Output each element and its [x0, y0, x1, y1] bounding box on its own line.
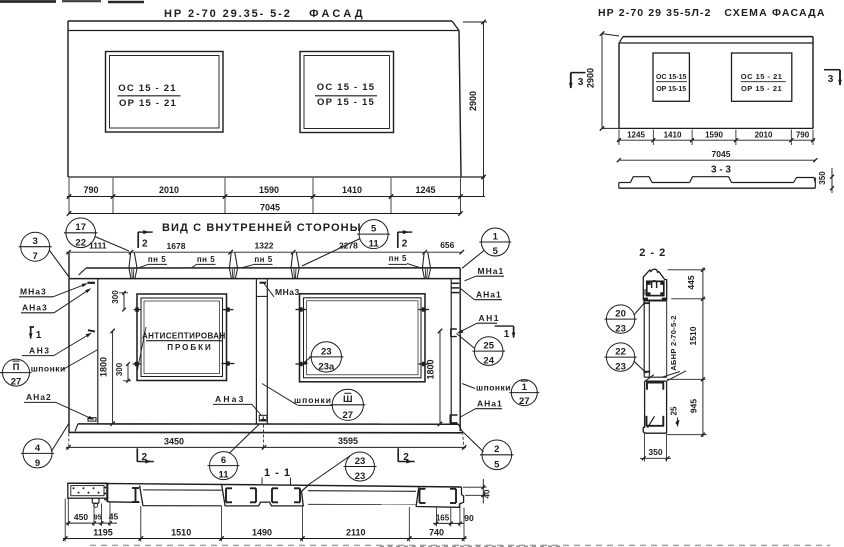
svg-text:740: 740 [429, 528, 444, 538]
svg-text:2278: 2278 [339, 241, 358, 251]
svg-text:350: 350 [818, 171, 827, 185]
svg-text:СХЕМА ФАСАДА: СХЕМА ФАСАДА [724, 7, 825, 19]
svg-text:1: 1 [493, 231, 499, 242]
svg-text:АБНР 2-70-5-2: АБНР 2-70-5-2 [669, 315, 678, 371]
svg-text:1410: 1410 [342, 185, 362, 195]
svg-text:1800: 1800 [99, 357, 109, 377]
svg-text:7: 7 [33, 251, 38, 262]
svg-text:1800: 1800 [426, 359, 436, 379]
svg-text:НР 2-70 29 35-5Л-2: НР 2-70 29 35-5Л-2 [598, 7, 712, 19]
svg-text:3: 3 [828, 74, 834, 85]
svg-text:2: 2 [142, 239, 148, 250]
svg-text:3450: 3450 [164, 436, 184, 446]
svg-text:2: 2 [142, 452, 148, 463]
svg-text:ОР 15-15: ОР 15-15 [656, 86, 686, 93]
svg-text:АН1: АН1 [479, 313, 501, 323]
svg-text:П: П [13, 362, 20, 373]
svg-text:ФАСАД: ФАСАД [309, 8, 366, 20]
svg-text:300: 300 [111, 290, 120, 304]
svg-text:656: 656 [440, 240, 454, 250]
svg-text:2900: 2900 [468, 91, 478, 111]
svg-text:1: 1 [504, 329, 510, 340]
svg-text:АНа3: АНа3 [215, 394, 246, 404]
svg-text:11: 11 [218, 470, 229, 481]
svg-text:ОР 15 - 21: ОР 15 - 21 [741, 84, 782, 93]
svg-text:7045: 7045 [260, 203, 280, 213]
svg-text:450: 450 [74, 512, 88, 522]
svg-text:7045: 7045 [712, 149, 731, 159]
svg-text:1 - 1: 1 - 1 [264, 467, 291, 479]
svg-text:3: 3 [578, 77, 584, 88]
svg-text:9: 9 [35, 458, 40, 469]
svg-text:шпонки: шпонки [294, 395, 332, 405]
svg-text:1: 1 [36, 330, 42, 341]
svg-text:пн 5: пн 5 [254, 255, 272, 264]
svg-text:27: 27 [343, 410, 354, 421]
svg-text:1590: 1590 [259, 185, 279, 195]
svg-text:1195: 1195 [93, 528, 113, 538]
svg-text:2: 2 [494, 444, 499, 455]
svg-text:ПРОБКИ: ПРОБКИ [167, 343, 213, 352]
svg-text:445: 445 [686, 275, 696, 289]
svg-text:2010: 2010 [755, 131, 773, 140]
svg-text:ОС 15 - 21: ОС 15 - 21 [741, 72, 783, 81]
svg-text:2900: 2900 [585, 68, 595, 88]
svg-text:40: 40 [483, 489, 492, 498]
svg-text:МНа1: МНа1 [478, 266, 505, 276]
svg-text:945: 945 [689, 399, 699, 413]
svg-text:23: 23 [355, 471, 366, 482]
svg-text:1245: 1245 [415, 185, 435, 195]
svg-text:45: 45 [109, 512, 119, 522]
svg-text:шпонки: шпонки [31, 364, 66, 374]
svg-text:27: 27 [11, 376, 22, 387]
svg-text:1510: 1510 [688, 326, 698, 345]
svg-text:АНа2: АНа2 [26, 392, 52, 402]
svg-text:4: 4 [35, 443, 41, 454]
svg-text:1490: 1490 [252, 528, 272, 538]
svg-text:3: 3 [33, 236, 38, 247]
svg-text:24: 24 [483, 355, 494, 366]
svg-text:ВИД С ВНУТРЕННЕЙ СТОРОНЫ: ВИД С ВНУТРЕННЕЙ СТОРОНЫ [162, 221, 362, 234]
svg-text:пн 5: пн 5 [148, 255, 166, 264]
svg-text:90: 90 [464, 513, 474, 523]
svg-text:ОС 15-15: ОС 15-15 [656, 74, 686, 81]
svg-text:5: 5 [493, 246, 499, 257]
svg-text:25: 25 [670, 406, 679, 415]
svg-text:2010: 2010 [159, 185, 179, 195]
svg-text:АНТИСЕПТИРОВАН: АНТИСЕПТИРОВАН [142, 332, 226, 341]
svg-text:2: 2 [403, 452, 409, 463]
svg-text:НР 2-70 29.35- 5-2: НР 2-70 29.35- 5-2 [164, 8, 292, 20]
svg-text:22: 22 [615, 347, 626, 358]
svg-text:пн 5: пн 5 [197, 255, 215, 264]
svg-text:АНа1: АНа1 [477, 399, 503, 409]
svg-text:2: 2 [402, 239, 408, 250]
svg-text:17: 17 [75, 222, 86, 233]
svg-text:ОС 15 - 15: ОС 15 - 15 [317, 82, 375, 93]
svg-text:5: 5 [371, 224, 377, 235]
svg-text:165: 165 [436, 514, 450, 523]
svg-text:пн 5: пн 5 [389, 254, 407, 263]
svg-text:МНа3: МНа3 [20, 287, 47, 297]
svg-text:ОР 15 - 21: ОР 15 - 21 [119, 98, 177, 109]
svg-text:22: 22 [75, 237, 86, 248]
svg-text:1111: 1111 [89, 241, 107, 251]
svg-text:3595: 3595 [338, 436, 358, 446]
svg-text:20: 20 [615, 309, 626, 320]
svg-text:3 - 3: 3 - 3 [711, 165, 731, 176]
svg-text:11: 11 [369, 238, 380, 249]
svg-text:1322: 1322 [255, 241, 274, 251]
svg-text:790: 790 [83, 185, 98, 195]
svg-text:25: 25 [483, 341, 494, 352]
svg-text:Ш: Ш [343, 394, 353, 405]
svg-text:АНа1: АНа1 [476, 290, 502, 300]
svg-text:ОР 15 - 15: ОР 15 - 15 [317, 97, 375, 108]
svg-text:1410: 1410 [664, 131, 682, 140]
svg-text:ОС 15 - 21: ОС 15 - 21 [118, 83, 176, 94]
svg-text:1590: 1590 [705, 131, 723, 140]
svg-text:350: 350 [648, 447, 662, 457]
svg-text:790: 790 [796, 131, 810, 140]
svg-text:2110: 2110 [346, 528, 366, 538]
svg-text:27: 27 [519, 396, 530, 407]
svg-text:23: 23 [615, 361, 626, 372]
svg-text:300: 300 [115, 362, 124, 376]
svg-text:шпонки: шпонки [476, 383, 511, 393]
svg-text:23: 23 [615, 323, 626, 334]
svg-text:23: 23 [355, 456, 366, 467]
svg-text:1678: 1678 [167, 241, 186, 251]
svg-text:6: 6 [221, 455, 226, 466]
svg-text:95: 95 [94, 515, 102, 522]
svg-text:1510: 1510 [171, 528, 191, 538]
svg-text:5: 5 [494, 459, 500, 470]
svg-text:23а: 23а [318, 362, 335, 373]
svg-text:МНа3: МНа3 [275, 287, 300, 297]
svg-text:АНа3: АНа3 [22, 303, 48, 313]
svg-text:2 - 2: 2 - 2 [639, 247, 666, 259]
svg-text:АН3: АН3 [29, 346, 51, 356]
svg-text:1: 1 [522, 382, 528, 393]
svg-text:1245: 1245 [627, 131, 645, 140]
svg-text:23: 23 [321, 346, 332, 357]
